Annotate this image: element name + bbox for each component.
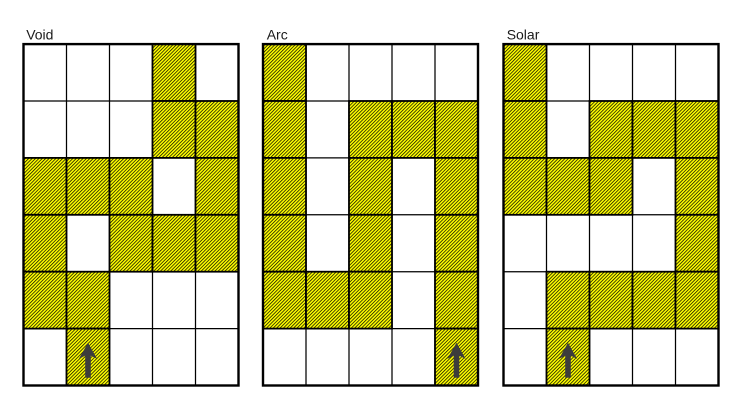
svg-text:Arc: Arc (267, 27, 288, 43)
svg-text:Void: Void (26, 27, 53, 43)
svg-text:Solar: Solar (507, 27, 540, 43)
